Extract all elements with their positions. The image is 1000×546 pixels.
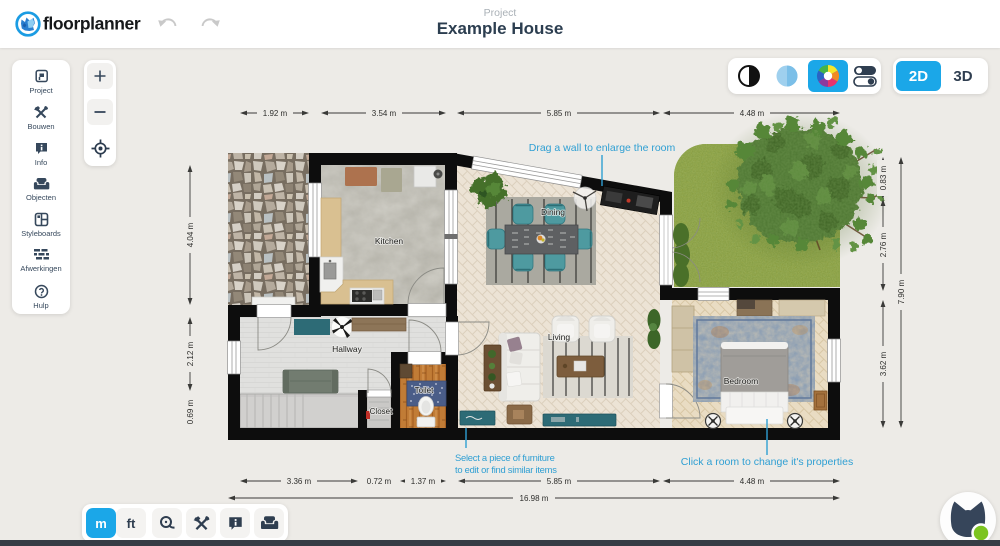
svg-text:5.85 m: 5.85 m bbox=[547, 109, 572, 118]
svg-text:3.36 m: 3.36 m bbox=[287, 477, 312, 486]
svg-text:5.85 m: 5.85 m bbox=[547, 477, 572, 486]
svg-text:7.90 m: 7.90 m bbox=[897, 279, 906, 304]
svg-text:0.72 m: 0.72 m bbox=[367, 477, 392, 486]
svg-text:0.83 m: 0.83 m bbox=[879, 165, 888, 190]
svg-text:Toilet: Toilet bbox=[415, 386, 434, 395]
svg-text:3.54 m: 3.54 m bbox=[372, 109, 397, 118]
svg-text:1.37 m: 1.37 m bbox=[411, 477, 436, 486]
svg-text:Closet: Closet bbox=[370, 407, 393, 416]
svg-text:4.04 m: 4.04 m bbox=[186, 222, 195, 247]
svg-text:Hallway: Hallway bbox=[332, 344, 363, 354]
svg-text:Living: Living bbox=[548, 332, 570, 342]
svg-text:Dining: Dining bbox=[541, 207, 565, 217]
svg-text:1.92 m: 1.92 m bbox=[263, 109, 288, 118]
svg-text:2.76 m: 2.76 m bbox=[879, 232, 888, 257]
svg-text:3.62 m: 3.62 m bbox=[879, 351, 888, 376]
svg-text:4.48 m: 4.48 m bbox=[740, 109, 765, 118]
svg-text:Drag a wall to enlarge the roo: Drag a wall to enlarge the room bbox=[529, 142, 676, 154]
svg-text:to edit or find similar items: to edit or find similar items bbox=[455, 464, 557, 475]
svg-text:2.12 m: 2.12 m bbox=[186, 341, 195, 366]
svg-text:Bedroom: Bedroom bbox=[724, 376, 759, 386]
svg-text:Select a piece of furniture: Select a piece of furniture bbox=[455, 452, 555, 463]
svg-text:0.69 m: 0.69 m bbox=[186, 399, 195, 424]
svg-text:Click a room to change it's pr: Click a room to change it's properties bbox=[681, 456, 853, 468]
svg-text:Kitchen: Kitchen bbox=[375, 236, 404, 246]
svg-text:16.98 m: 16.98 m bbox=[520, 494, 549, 503]
svg-text:4.48 m: 4.48 m bbox=[740, 477, 765, 486]
